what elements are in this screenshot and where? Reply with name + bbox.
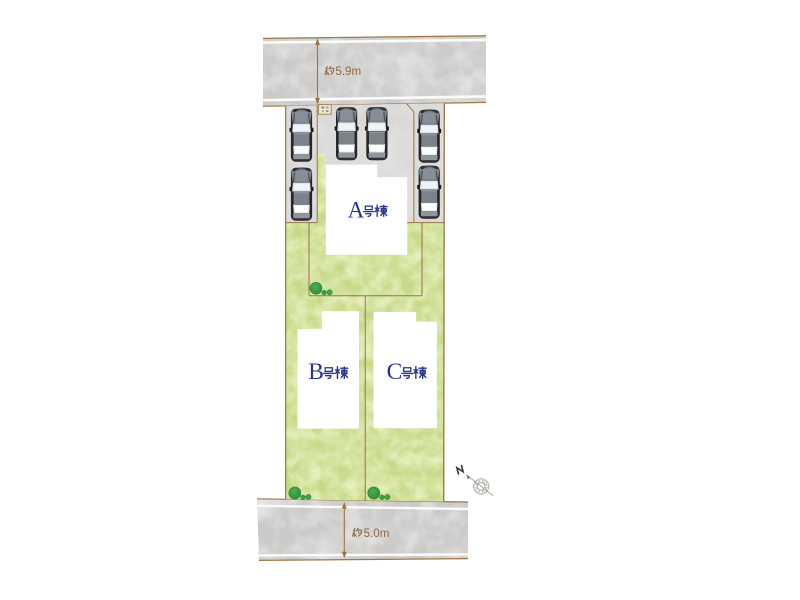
svg-text:A: A	[348, 198, 365, 223]
svg-text:5.0m: 5.0m	[364, 527, 390, 540]
svg-text:C: C	[387, 359, 403, 385]
svg-text:5.9m: 5.9m	[335, 65, 361, 78]
svg-text:B: B	[308, 359, 324, 385]
